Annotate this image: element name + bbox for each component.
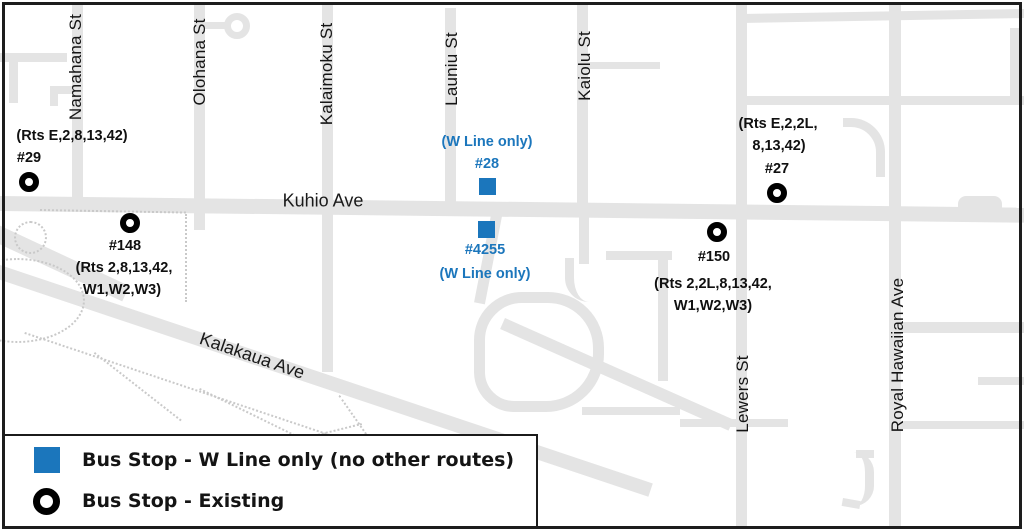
road-loop-drive — [474, 292, 604, 412]
waikiki-bus-stop-map: Namahana St Olohana St Kalaimoku St Laun… — [0, 0, 1024, 531]
stop-29-id: #29 — [17, 150, 41, 166]
street-label-kaiolu: Kaiolu St — [575, 31, 595, 101]
street-label-lewers: Lewers St — [733, 355, 753, 432]
stop-148-id: #148 — [109, 238, 141, 254]
road-top-right-mid — [741, 96, 1024, 105]
street-label-kalaimoku: Kalaimoku St — [317, 23, 337, 126]
stop-28-note: (W Line only) — [441, 134, 532, 150]
road-top-right-upper — [741, 9, 1024, 23]
road-paren-tick-top — [856, 450, 874, 458]
stop-28-id: #28 — [475, 156, 499, 172]
park-path-1 — [94, 352, 182, 421]
legend-w-line-label: Bus Stop - W Line only (no other routes) — [82, 449, 514, 471]
stop-150-marker — [707, 222, 727, 242]
road-roundabout — [224, 13, 250, 39]
stop-148-marker — [120, 213, 140, 233]
legend-w-line-square-icon — [34, 447, 60, 473]
stop-4255-note: (W Line only) — [439, 266, 530, 282]
street-label-kuhio: Kuhio Ave — [283, 191, 364, 212]
stop-29-marker — [19, 172, 39, 192]
legend-existing-label: Bus Stop - Existing — [82, 490, 284, 512]
road-minor-horizontal — [582, 407, 680, 415]
road-far-right-vertical — [1010, 28, 1019, 100]
stop-27-routes-line2: 8,13,42) — [752, 138, 805, 154]
road-elbow-stub — [876, 155, 885, 177]
road-left-stub-vertical — [9, 55, 18, 103]
stop-4255-marker — [478, 221, 495, 238]
stop-27-marker — [767, 183, 787, 203]
road-paren-driveway — [848, 452, 874, 506]
road-paren-tick-bottom — [842, 498, 861, 509]
stop-27-id: #27 — [765, 161, 789, 177]
road-royal-hawaiian-ave — [889, 3, 901, 528]
road-top-left-stub — [0, 53, 67, 62]
road-kaiolu-side-stub — [585, 62, 660, 69]
park-boundary-vertical — [185, 214, 187, 302]
road-kaiolu-st-extension — [579, 212, 589, 264]
stop-150-routes-line1: (Rts 2,2L,8,13,42, — [654, 276, 772, 292]
park-fountain-circle — [14, 221, 47, 254]
street-label-royal-hawaiian: Royal Hawaiian Ave — [888, 278, 908, 432]
road-right-bottom-stub — [978, 377, 1024, 385]
stop-28-marker — [479, 178, 496, 195]
legend-existing-stop-icon — [33, 488, 60, 515]
street-label-launiu: Launiu St — [442, 32, 462, 106]
stop-148-routes-line2: W1,W2,W3) — [83, 282, 161, 298]
road-royal-hawaiian-cross-lower — [900, 421, 1024, 429]
road-parking-blob — [958, 196, 1002, 208]
stop-148-routes-line1: (Rts 2,8,13,42, — [76, 260, 173, 276]
road-top-right-elbow — [843, 118, 885, 158]
road-hook-vertical — [50, 86, 58, 106]
stop-150-routes-line2: W1,W2,W3) — [674, 298, 752, 314]
road-l-street-vertical — [658, 251, 668, 381]
stop-29-routes: (Rts E,2,8,13,42) — [16, 128, 127, 144]
road-lewers-st — [736, 3, 747, 528]
road-kuhio-ave — [0, 196, 1024, 223]
stop-27-routes-line1: (Rts E,2,2L, — [739, 116, 818, 132]
street-label-olohana: Olohana St — [190, 18, 210, 105]
stop-150-id: #150 — [698, 249, 730, 265]
street-label-kalakaua: Kalakaua Ave — [197, 328, 308, 384]
street-label-namahana: Namahana St — [66, 14, 86, 120]
stop-4255-id: #4255 — [465, 242, 505, 258]
road-royal-hawaiian-cross — [896, 322, 1024, 333]
map-legend: Bus Stop - W Line only (no other routes)… — [2, 434, 538, 528]
